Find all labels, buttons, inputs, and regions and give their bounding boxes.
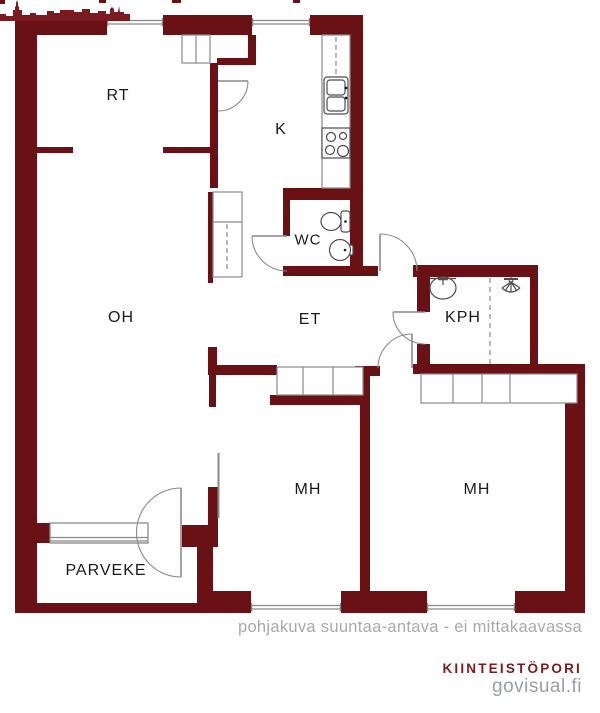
storage	[182, 35, 577, 403]
wall-et-closet-back	[270, 395, 367, 405]
wall-kph-west-upper	[417, 268, 430, 312]
wall-balcony-bottom	[15, 603, 210, 613]
wall-left	[15, 15, 37, 612]
wall-balcony-corner	[182, 525, 218, 547]
kph-sink-icon	[430, 277, 456, 299]
wall-kph-north	[413, 265, 538, 277]
room-label-rt: RT	[106, 87, 129, 105]
room-label-et: ET	[299, 311, 321, 329]
window-balcony	[50, 523, 148, 543]
room-label-mh1: MH	[295, 481, 322, 499]
wall-bottom-seg3	[515, 591, 585, 613]
floor-plan: RT K WC OH ET KPH MH MH PARVEKE pohjakuv…	[0, 0, 600, 713]
wall-rt-k	[210, 63, 218, 188]
wall-mh2-north	[413, 364, 585, 374]
wall-balcony-east	[197, 547, 213, 605]
rt-recess	[182, 35, 210, 63]
et-closet	[277, 367, 363, 395]
room-label-parveke: PARVEKE	[65, 562, 146, 580]
doors	[137, 81, 426, 577]
floor-plan-drawing	[0, 0, 600, 713]
stove-icon	[322, 128, 350, 158]
wall-bottom-seg2	[341, 591, 427, 613]
wall-rt-oh-stub-left	[35, 147, 73, 153]
wall-top-right	[310, 15, 363, 35]
wall-mh1-west-stub	[209, 375, 216, 407]
brand-name: KIINTEISTÖPORI	[182, 661, 582, 676]
wc-door	[252, 236, 287, 271]
window-k-top	[252, 18, 310, 27]
wall-k-entry-horiz	[217, 58, 256, 65]
wall-kph-east	[530, 265, 538, 374]
window-mh1-bottom	[251, 603, 341, 612]
room-label-mh2: MH	[464, 481, 491, 499]
room-label-oh: OH	[108, 309, 134, 327]
wall-wc-north	[283, 188, 362, 200]
kph-door	[393, 312, 425, 344]
room-label-kph: KPH	[445, 309, 481, 327]
window-mh2-bottom	[427, 603, 515, 612]
wall-hall-west	[208, 192, 213, 283]
kitchen-sink-icon	[324, 77, 348, 114]
walls	[0, 0, 585, 613]
hall-closet	[213, 192, 242, 277]
wall-rt-oh-stub-right	[163, 147, 218, 153]
wc-sink-icon	[330, 240, 354, 261]
city-skyline-icon	[0, 0, 130, 21]
website-url: govisual.fi	[182, 676, 582, 698]
room-label-k: K	[275, 121, 287, 139]
wall-top-mid	[163, 15, 252, 35]
wall-balcony-north-jamb	[35, 523, 50, 543]
wall-et-south	[208, 365, 277, 375]
wall-sliver	[172, 0, 181, 3]
wall-sliver	[293, 0, 300, 3]
k-door	[218, 81, 248, 111]
disclaimer-text: pohjakuva suuntaa-antava - ei mittakaava…	[22, 618, 582, 637]
wall-kitchen-east	[350, 33, 363, 268]
shower-icon	[502, 278, 520, 292]
wall-wc-west	[283, 200, 290, 236]
wall-mh-divider	[360, 368, 370, 591]
toilet-icon	[321, 211, 350, 232]
entrance-door	[380, 234, 417, 271]
wall-oh-mh	[208, 487, 218, 527]
room-label-wc: WC	[295, 232, 322, 249]
wall-wc-south	[283, 266, 378, 276]
mh2-closet	[421, 374, 577, 403]
